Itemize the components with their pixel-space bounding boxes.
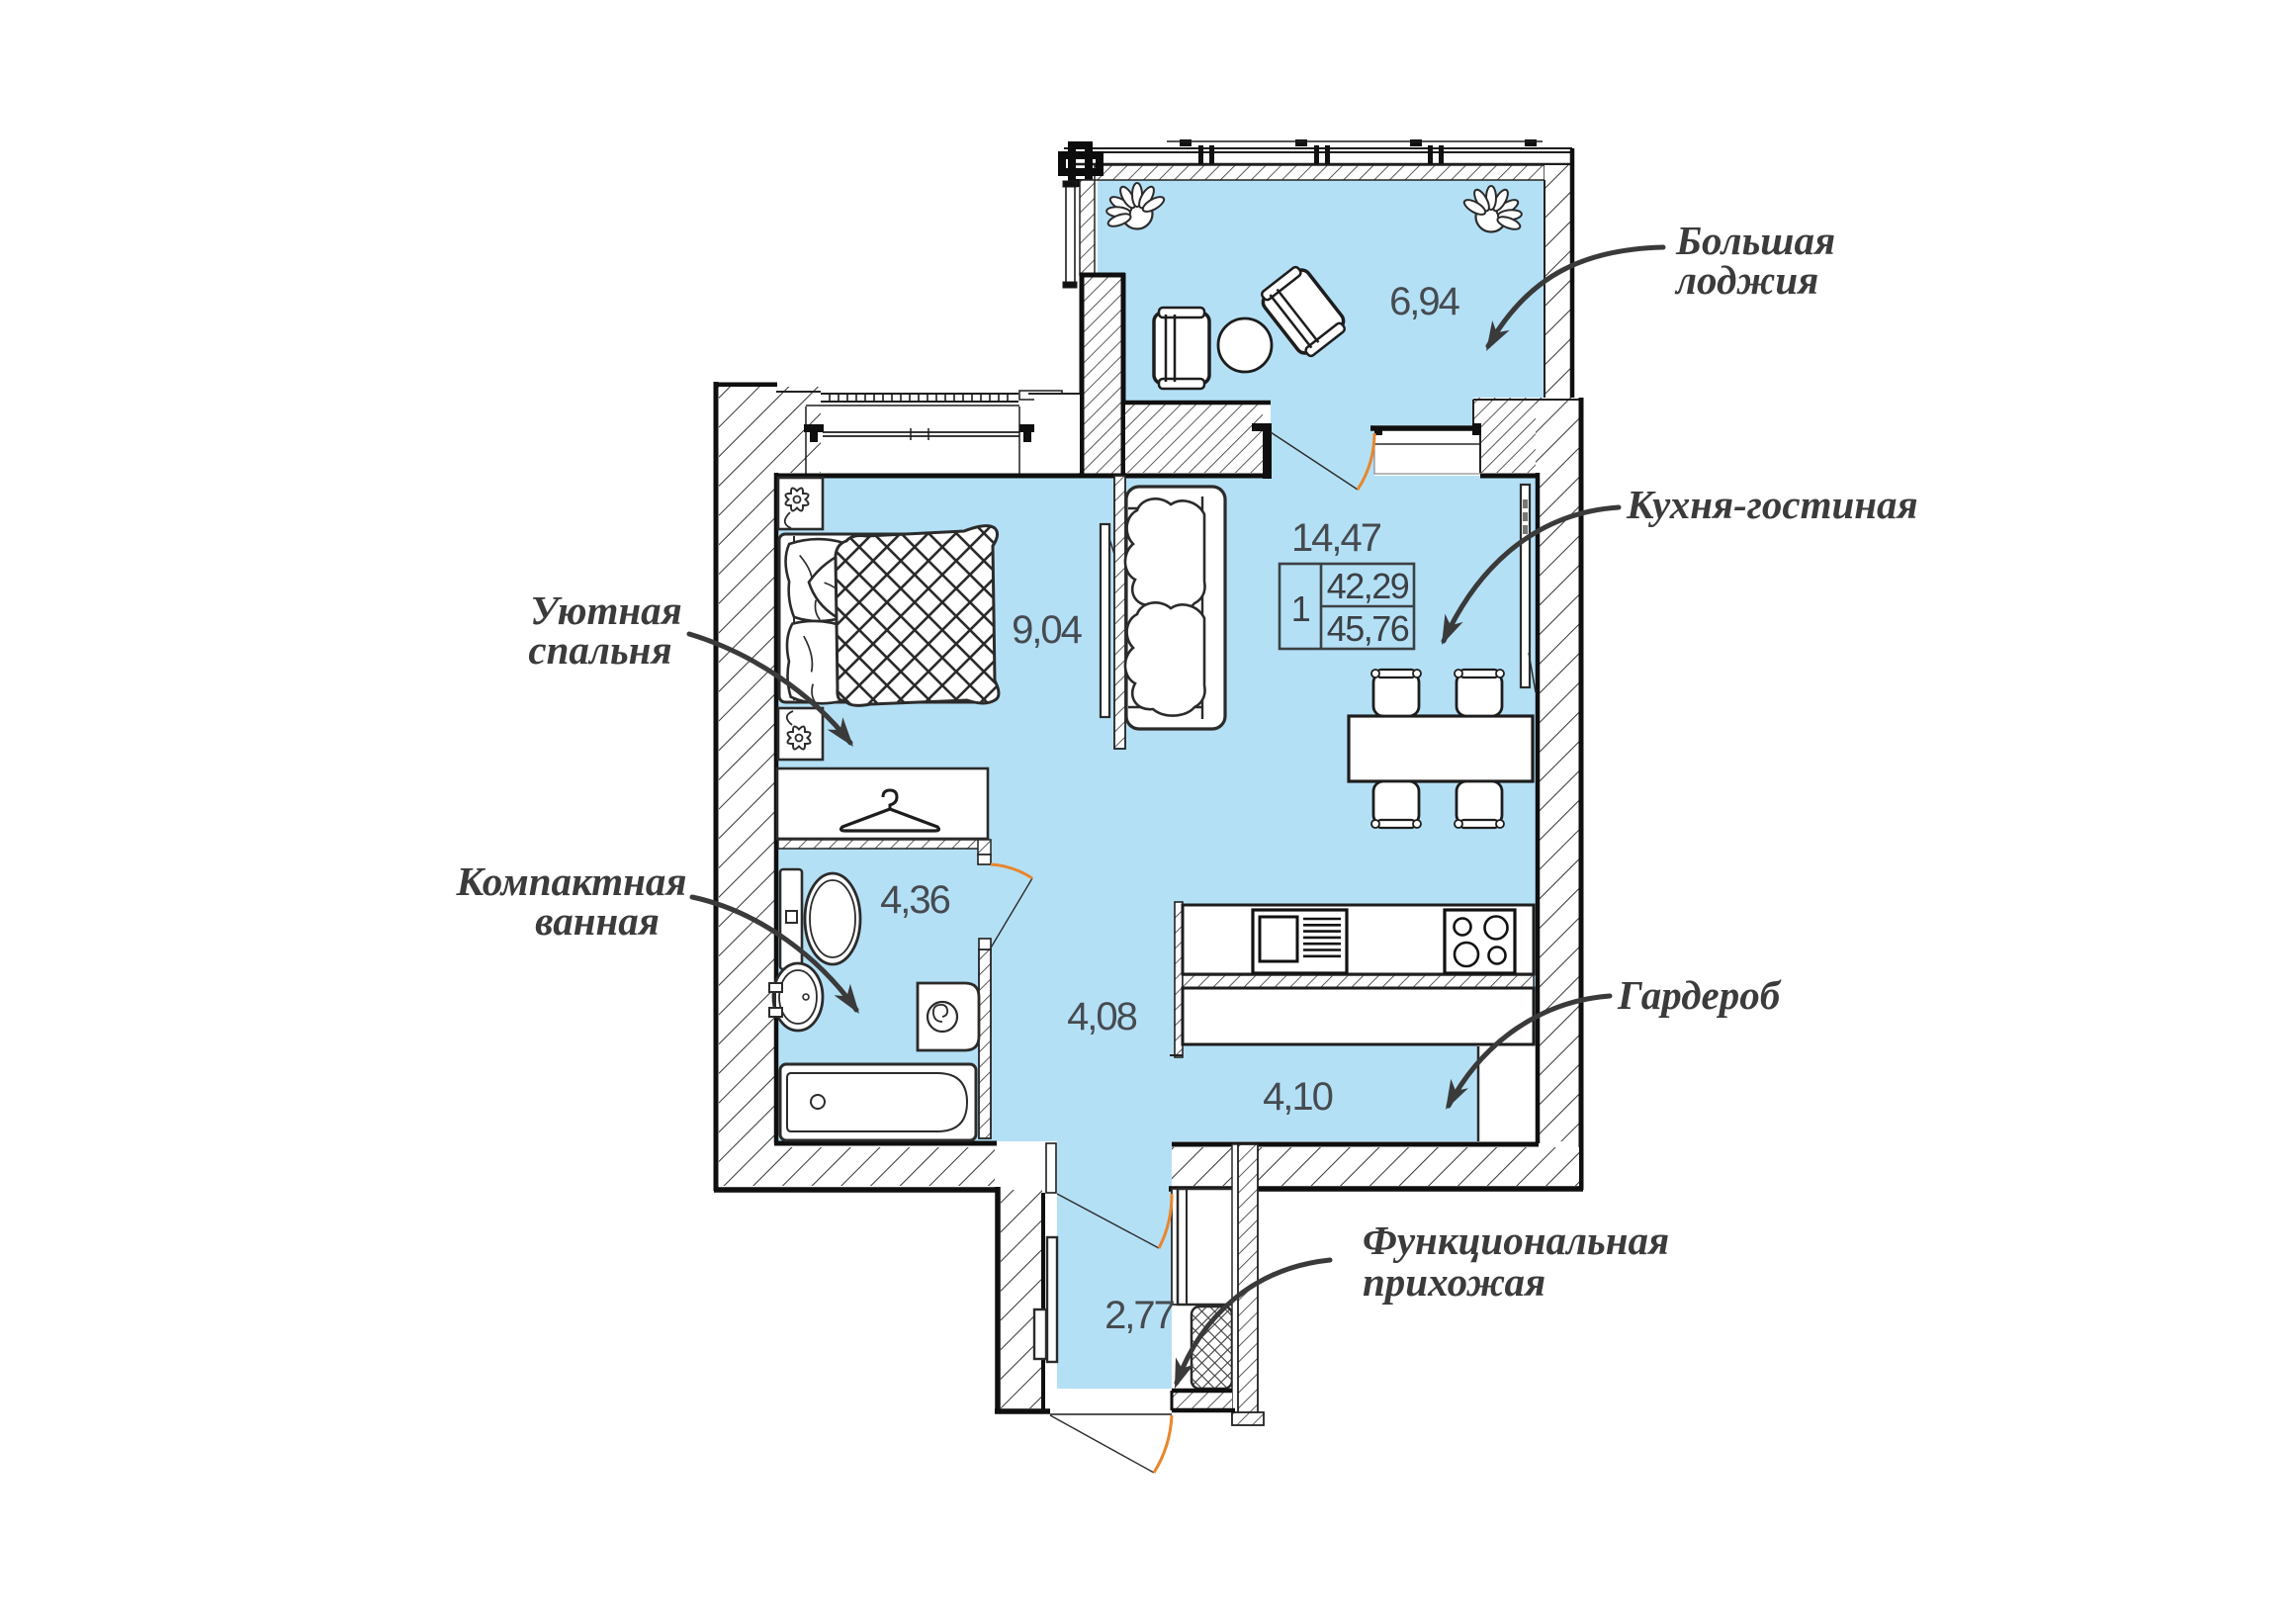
svg-text:45,76: 45,76 [1327, 608, 1409, 649]
svg-text:Функциональная: Функциональная [1363, 1218, 1669, 1263]
svg-text:Кухня-гостиная: Кухня-гостиная [1626, 482, 1918, 527]
svg-text:4,36: 4,36 [880, 878, 950, 922]
svg-text:14,47: 14,47 [1291, 516, 1381, 560]
svg-text:42,29: 42,29 [1327, 566, 1409, 606]
svg-text:лоджия: лоджия [1674, 257, 1818, 303]
svg-text:спальня: спальня [528, 627, 671, 673]
svg-text:6,94: 6,94 [1389, 280, 1460, 323]
svg-text:1: 1 [1291, 588, 1310, 629]
svg-text:прихожая: прихожая [1363, 1259, 1545, 1305]
svg-text:Гардероб: Гардероб [1617, 972, 1782, 1018]
svg-text:2,77: 2,77 [1104, 1294, 1175, 1337]
svg-text:ванная: ванная [535, 898, 660, 944]
svg-text:4,10: 4,10 [1263, 1075, 1333, 1119]
svg-text:9,04: 9,04 [1012, 608, 1083, 652]
svg-text:4,08: 4,08 [1067, 995, 1137, 1038]
